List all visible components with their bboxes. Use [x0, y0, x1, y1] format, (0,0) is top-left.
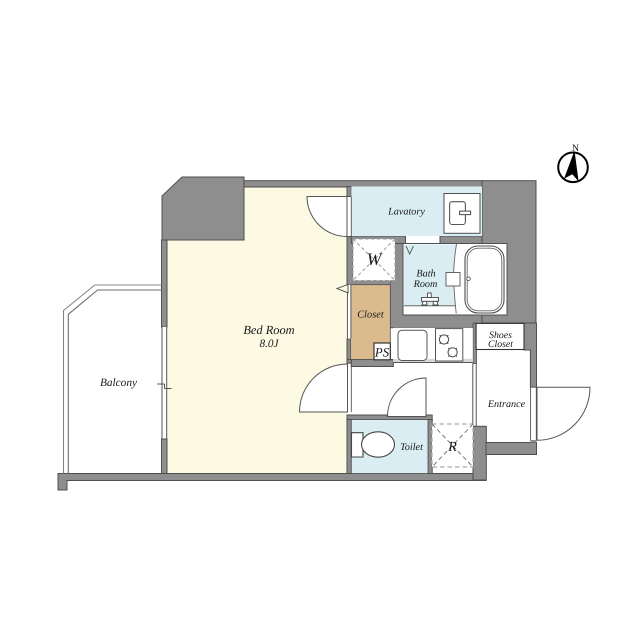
svg-text:Closet: Closet — [357, 310, 385, 321]
svg-text:W: W — [367, 249, 383, 269]
svg-text:R: R — [447, 440, 457, 455]
svg-text:8.0J: 8.0J — [260, 338, 280, 350]
svg-text:N: N — [572, 143, 579, 154]
svg-text:PS: PS — [374, 346, 390, 360]
svg-text:Bed Room: Bed Room — [243, 323, 294, 337]
svg-text:Toilet: Toilet — [400, 442, 424, 453]
svg-text:Lavatory: Lavatory — [387, 207, 425, 218]
svg-text:Room: Room — [413, 279, 438, 290]
svg-text:Bath: Bath — [416, 269, 435, 280]
svg-text:Closet: Closet — [488, 339, 513, 350]
svg-text:Entrance: Entrance — [487, 399, 526, 410]
svg-text:Balcony: Balcony — [100, 377, 138, 389]
